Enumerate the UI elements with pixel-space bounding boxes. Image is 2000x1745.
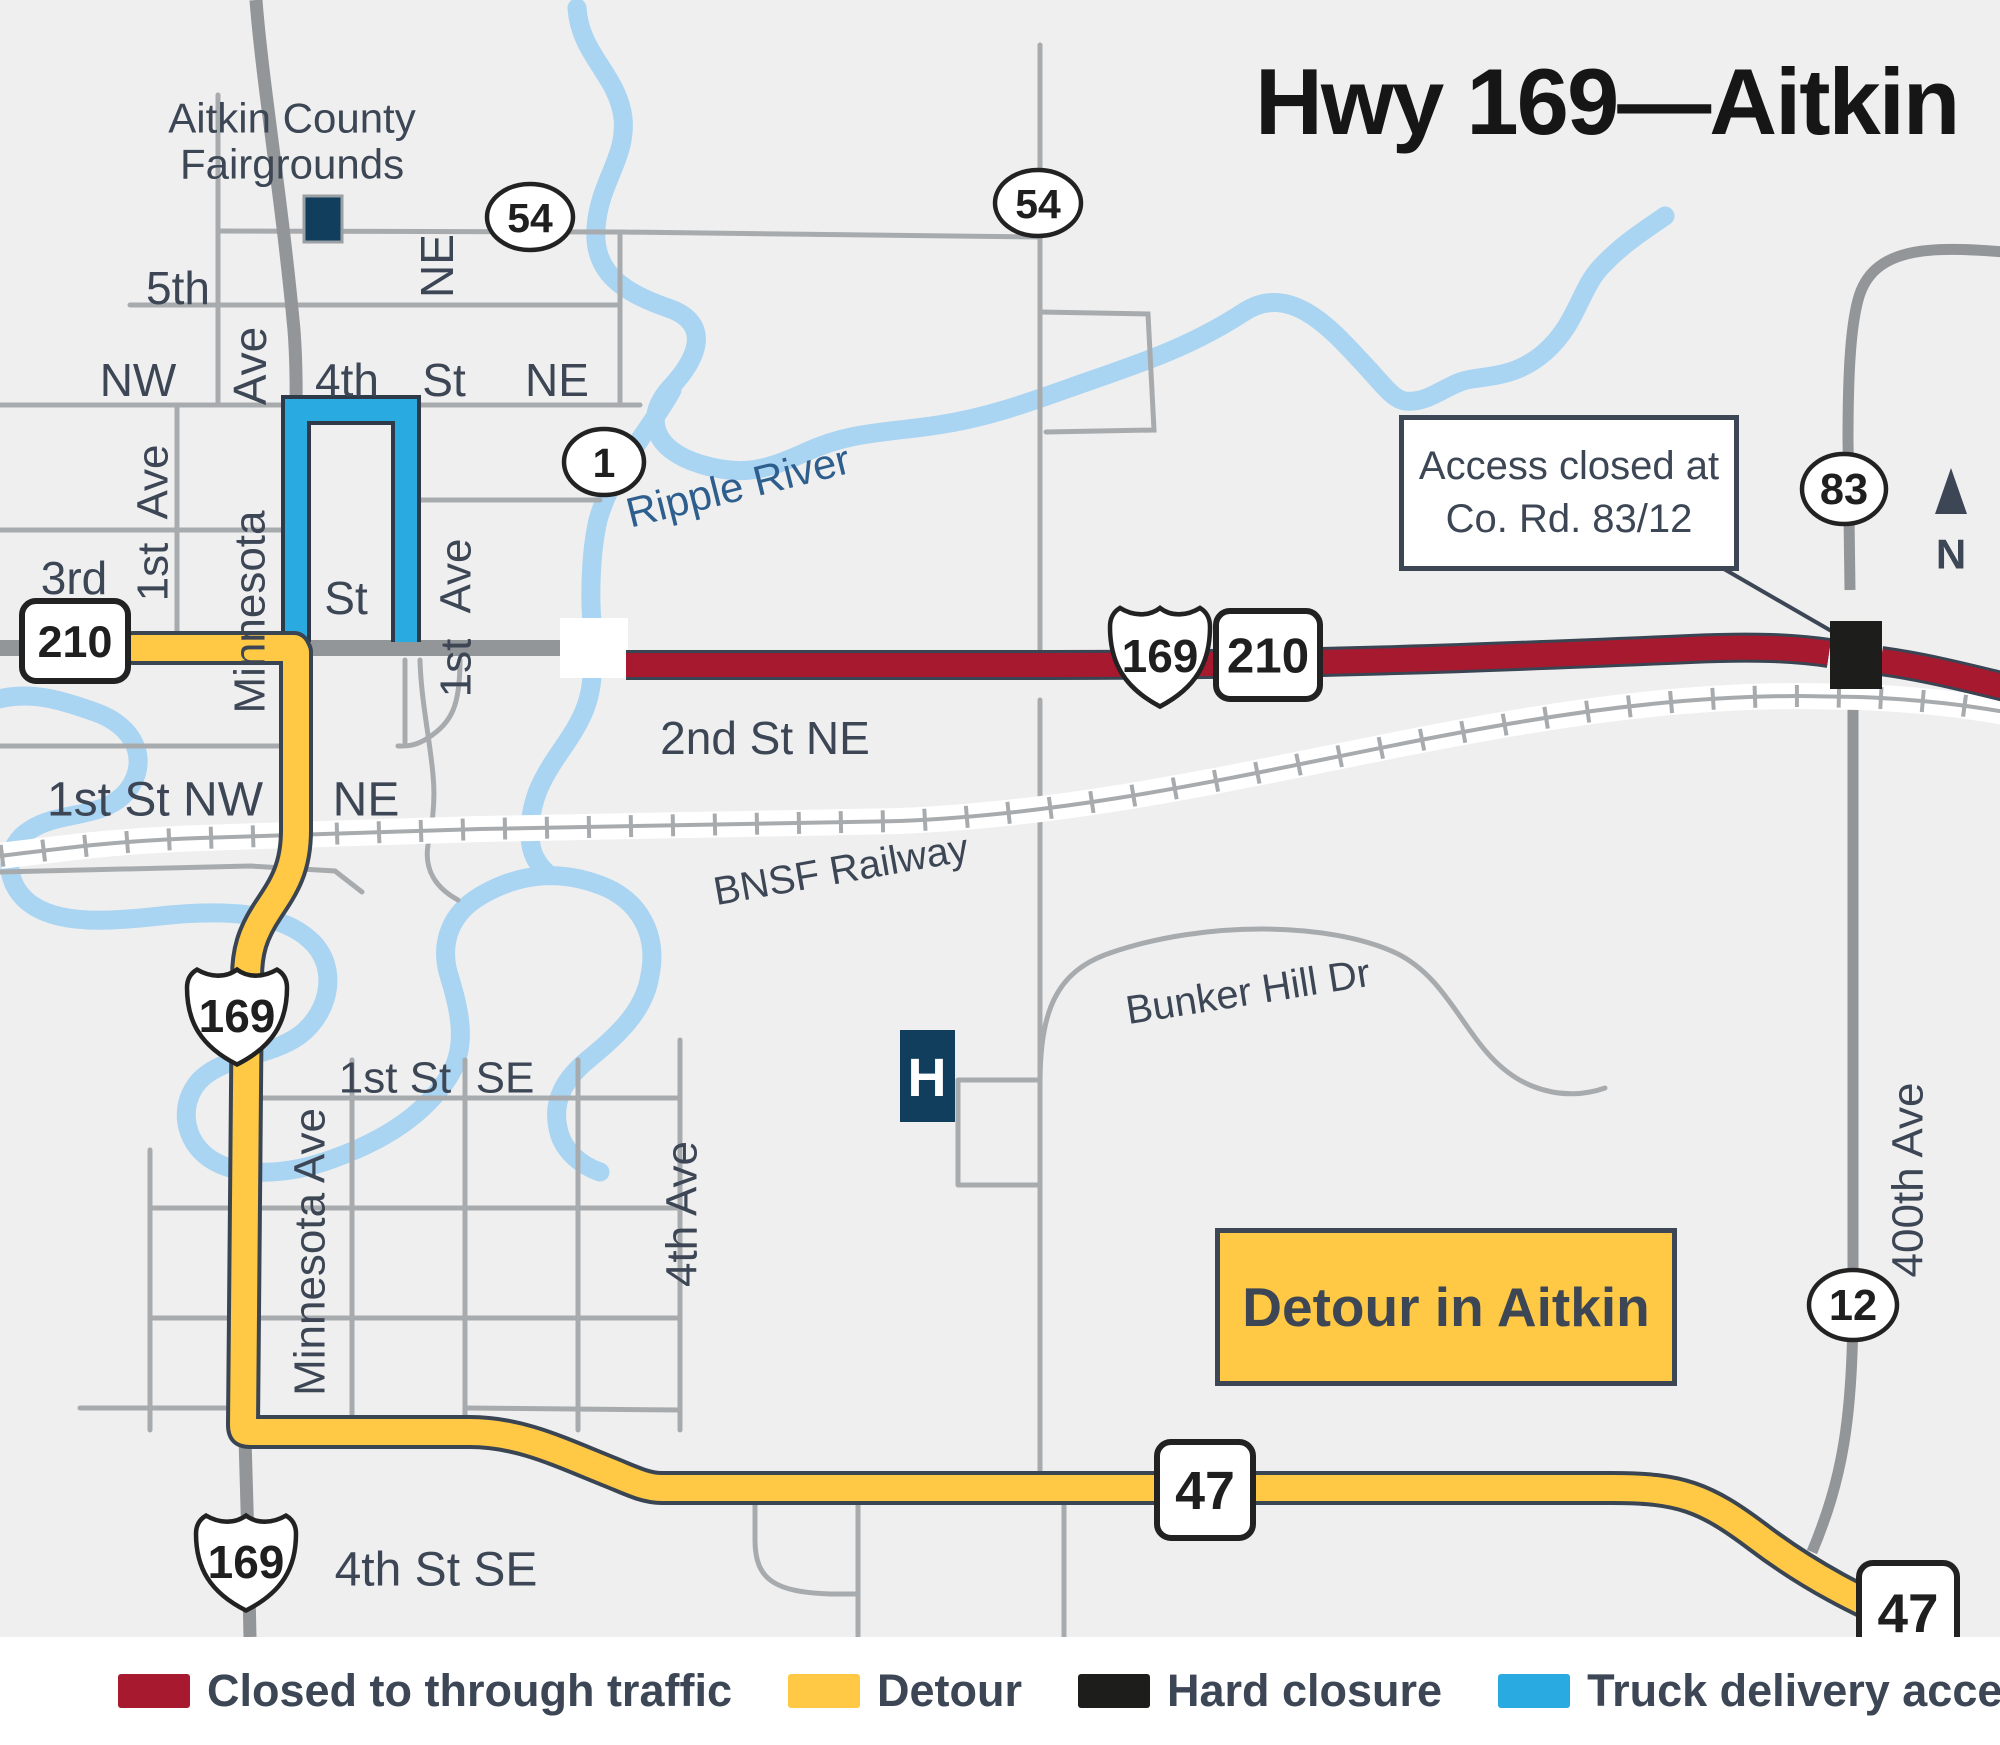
street-label-ave: Ave: [432, 538, 481, 613]
legend-swatch-detour: [788, 1674, 860, 1708]
route-shield-47: 47: [1157, 1442, 1253, 1538]
legend-swatch-hard: [1078, 1674, 1150, 1708]
route-shield-1: 1: [564, 429, 644, 495]
route-shield-210: 210: [1216, 611, 1320, 699]
legend-label-closed: Closed to through traffic: [207, 1665, 732, 1717]
street-label-4th: 4th: [315, 354, 379, 406]
legend-swatch-closed: [118, 1674, 190, 1708]
street-label-1st: 1st: [432, 639, 481, 698]
hard-closure-square: [1830, 621, 1882, 689]
street-label-5th: 5th: [146, 262, 210, 314]
street-label-st: St: [324, 572, 368, 624]
legend-label-hard: Hard closure: [1167, 1665, 1442, 1717]
callout-line2: Co. Rd. 83/12: [1446, 493, 1693, 546]
svg-text:12: 12: [1829, 1282, 1877, 1330]
street-label-ne: NE: [525, 354, 589, 406]
legend-item-closed: Closed to through traffic: [118, 1665, 732, 1717]
street-label-fairgrounds: Fairgrounds: [180, 141, 404, 188]
street-label-400th-ave: 400th Ave: [1884, 1083, 1933, 1278]
bridge-gap: [560, 618, 628, 678]
legend-item-detour: Detour: [788, 1665, 1022, 1717]
svg-text:210: 210: [1227, 629, 1309, 684]
street-label-1st-st-nw: 1st St NW: [47, 774, 264, 827]
street-label-1st-st: 1st St: [339, 1054, 452, 1103]
street-label-nw: NW: [100, 354, 177, 406]
street-label-ave: Ave: [129, 444, 178, 519]
svg-text:210: 210: [38, 617, 113, 667]
map-title: Hwy 169—Aitkin: [1255, 48, 1958, 156]
street-label-minnesota-ave: Minnesota Ave: [286, 1108, 335, 1396]
svg-text:169: 169: [208, 1536, 285, 1588]
svg-text:54: 54: [1015, 181, 1061, 227]
svg-text:47: 47: [1877, 1582, 1938, 1644]
route-shield-210: 210: [22, 601, 128, 681]
detour-badge-label: Detour in Aitkin: [1242, 1275, 1649, 1339]
svg-text:169: 169: [199, 990, 276, 1042]
hospital-marker: H: [900, 1030, 955, 1122]
legend-label-truck: Truck delivery access: [1587, 1665, 2000, 1717]
street-label-ave: Ave: [224, 327, 276, 405]
street-label-3rd: 3rd: [41, 552, 107, 604]
route-shield-54: 54: [995, 170, 1081, 236]
svg-text:47: 47: [1175, 1461, 1235, 1521]
svg-text:54: 54: [507, 195, 553, 241]
route-shield-12: 12: [1809, 1270, 1897, 1340]
legend-swatch-truck: [1498, 1674, 1570, 1708]
hospital-letter: H: [908, 1048, 947, 1108]
map-canvas: H Aitkin CountyFairgrounds5thNENWAve4thS…: [0, 0, 2000, 1745]
detour-map: H Aitkin CountyFairgrounds5thNENWAve4thS…: [0, 0, 2000, 1745]
street-label-st: St: [422, 354, 466, 406]
street-label-n: N: [1936, 531, 1966, 578]
street-label-2nd-st-ne: 2nd St NE: [660, 712, 870, 764]
street-label-minnesota: Minnesota: [226, 510, 275, 714]
street-label-4th-ave: 4th Ave: [658, 1141, 707, 1287]
legend-item-truck: Truck delivery access: [1498, 1665, 2000, 1717]
route-shield-83: 83: [1802, 454, 1886, 524]
svg-text:169: 169: [1122, 630, 1199, 682]
svg-text:1: 1: [593, 440, 616, 486]
street-label-se: SE: [476, 1054, 535, 1103]
street-label-ne: NE: [333, 774, 400, 827]
legend-item-hard: Hard closure: [1078, 1665, 1442, 1717]
legend-label-detour: Detour: [877, 1665, 1022, 1717]
legend: Closed to through trafficDetourHard clos…: [0, 1637, 2000, 1745]
street-label-ne: NE: [411, 234, 463, 298]
street-label-4th-st-se: 4th St SE: [335, 1544, 538, 1597]
detour-in-aitkin-badge: Detour in Aitkin: [1215, 1228, 1677, 1386]
access-closed-callout: Access closed at Co. Rd. 83/12: [1399, 415, 1739, 571]
street-label-aitkin-county: Aitkin County: [168, 95, 415, 142]
fairgrounds-marker: [304, 196, 342, 242]
route-shield-54: 54: [487, 184, 573, 250]
callout-line1: Access closed at: [1419, 440, 1719, 493]
street-label-1st: 1st: [129, 543, 178, 602]
svg-text:83: 83: [1820, 466, 1868, 514]
